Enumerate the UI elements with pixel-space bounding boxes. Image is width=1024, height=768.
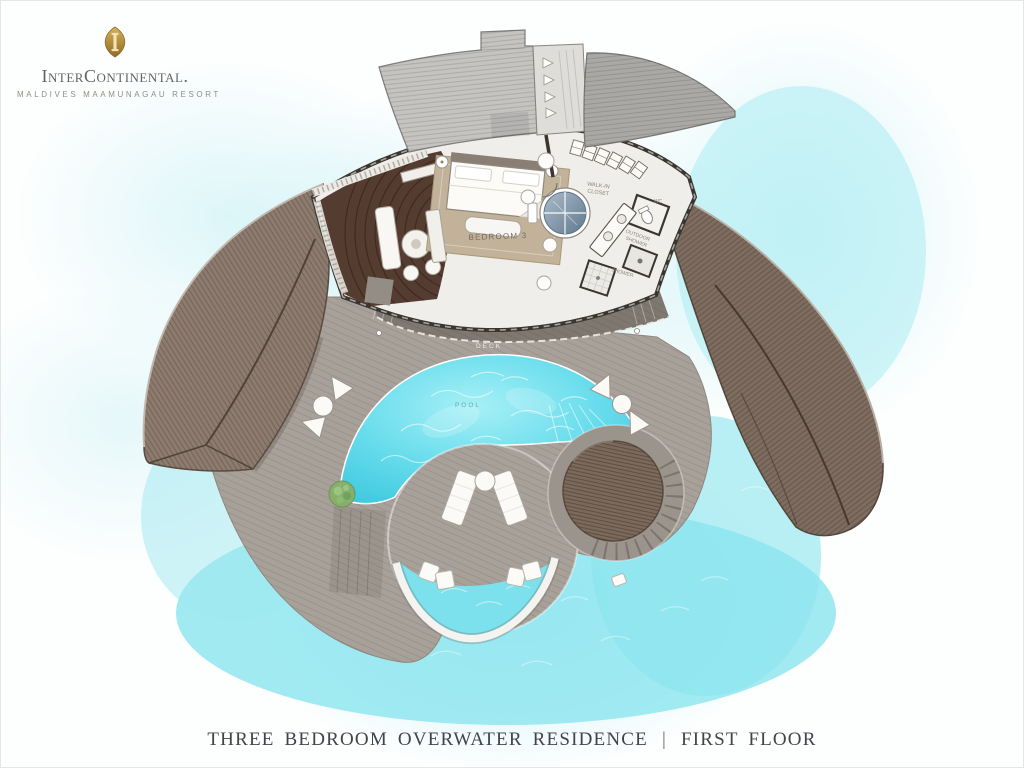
bath-stool xyxy=(537,276,551,290)
deck-label: DECK xyxy=(476,343,502,350)
plan-title: THREE BEDROOM OVERWATER RESIDENCE|FIRST … xyxy=(1,729,1023,751)
daybed-platform xyxy=(548,425,684,561)
lounge-pouffe xyxy=(404,266,419,281)
floor-plan: DECK TERRACE xyxy=(1,1,1024,768)
railing-post xyxy=(635,329,640,334)
entry-courtyard xyxy=(533,44,587,135)
wc-label: WC xyxy=(654,199,663,205)
plant xyxy=(329,481,355,507)
residence-title: THREE BEDROOM OVERWATER RESIDENCE xyxy=(207,729,648,750)
floorplan-page: DECK TERRACE xyxy=(0,0,1024,768)
railing-post xyxy=(377,331,382,336)
brand-logo: InterContinental. MALDIVES MAAMUNAGAU RE… xyxy=(17,25,213,99)
roof-hatch xyxy=(490,112,530,139)
top-right-roof xyxy=(584,53,735,147)
pool-label: POOL xyxy=(455,402,481,409)
brand-emblem-icon xyxy=(95,25,135,59)
bath-stool xyxy=(543,238,557,252)
bath-stool xyxy=(538,153,554,169)
top-left-roof xyxy=(379,30,537,152)
stair-landing xyxy=(364,276,393,305)
side-table xyxy=(475,471,495,491)
floor-title: FIRST FLOOR xyxy=(681,729,817,750)
bath-stool xyxy=(521,190,535,204)
brand-tagline: MALDIVES MAAMUNAGAU RESORT xyxy=(17,90,213,99)
brand-name: InterContinental. xyxy=(17,66,213,87)
title-divider: | xyxy=(662,729,667,750)
